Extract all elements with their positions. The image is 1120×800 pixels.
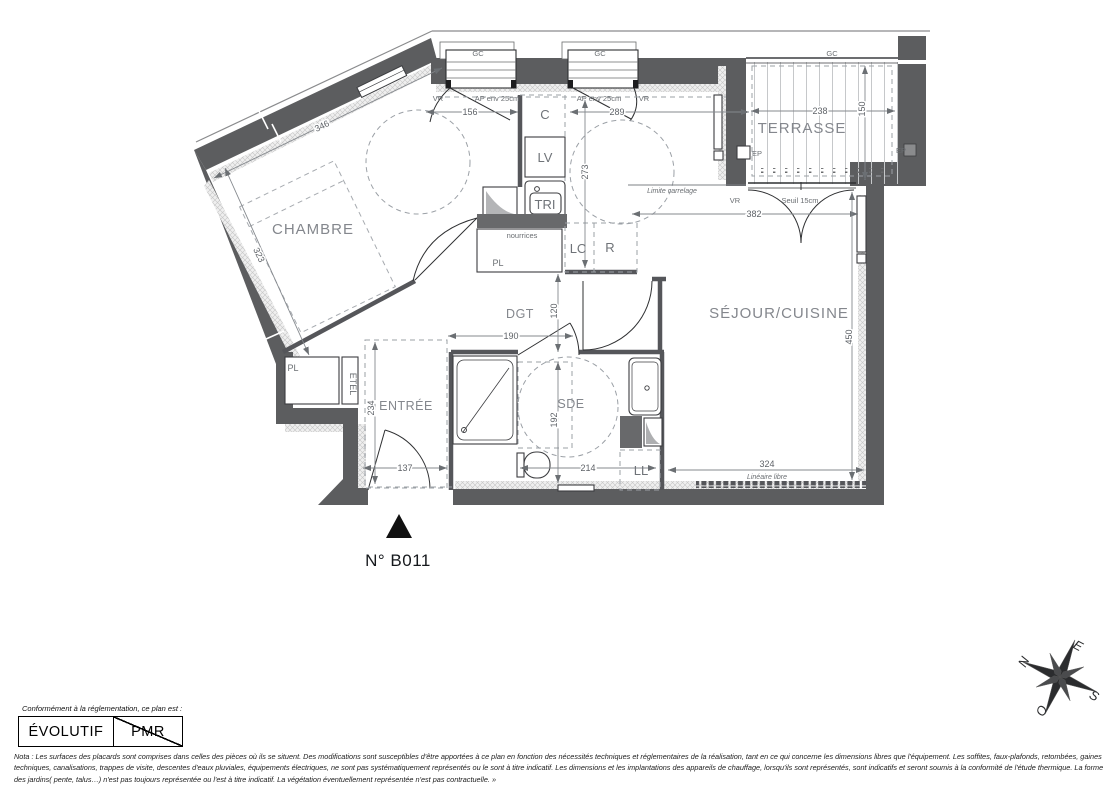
legend-table: ÉVOLUTIF PMR (18, 716, 183, 747)
pl-label-chambre: PL (287, 363, 298, 373)
turning-circle-chambre (366, 110, 470, 214)
legend-option-pmr: PMR (114, 717, 182, 746)
dim-chambre-left: 323 (251, 246, 267, 264)
gc-label-2: GC (594, 49, 606, 58)
c-label: C (540, 107, 549, 122)
entrance-door-swing (385, 430, 430, 488)
room-label-chambre: CHAMBRE (272, 221, 354, 238)
shower (453, 356, 517, 444)
lineaire-libre-label: Linéaire libre (747, 474, 787, 481)
dim-window1: 156 (462, 107, 477, 117)
limite-carrelage-label: Limite carrelage (647, 188, 697, 195)
sde-shaft (620, 416, 642, 448)
vr-label-1: VR (433, 94, 444, 103)
dim-entree-width: 137 (397, 463, 412, 473)
ep-label-left: EP (752, 149, 762, 158)
floor-plan-drawing: 346 323 156 289 273 238 150 382 450 190 … (0, 0, 1120, 800)
etel-label: ETEL (348, 373, 358, 396)
dim-terrasse-depth: 150 (857, 101, 867, 116)
sde-threshold (558, 485, 594, 491)
manifold-shaft (477, 214, 567, 228)
chambre-door-leaf (415, 218, 477, 280)
toilet-bowl (524, 452, 550, 478)
dim-lineaire-libre: 324 (759, 459, 774, 469)
vr-label-3: VR (730, 196, 741, 205)
sde-door-leaf (518, 323, 570, 355)
r-label: R (605, 240, 614, 255)
dim-entree-height: 234 (366, 400, 376, 415)
nourrices-label: nourrices (507, 231, 538, 240)
dim-sde-width: 214 (580, 463, 595, 473)
lineaire-libre-markers (696, 481, 866, 488)
room-label-dgt: DGT (506, 307, 534, 321)
dim-sejour-height: 450 (844, 329, 854, 344)
entrance-marker: N° B011 (365, 514, 431, 570)
dim-cuisine-depth: 273 (580, 164, 590, 179)
toilet-tank (517, 453, 524, 477)
ap-label-1: AP env 25cm (475, 94, 519, 103)
room-label-terrasse: TERRASSE (758, 120, 847, 137)
gc-label-1: GC (472, 49, 484, 58)
dim-dgt-width: 190 (503, 331, 518, 341)
compass-north-label: N (1015, 654, 1033, 670)
lv-label: LV (538, 150, 553, 165)
sejour-radiator-right (857, 196, 866, 252)
vr-label-2: VR (639, 94, 650, 103)
lc-label: LC (570, 241, 587, 256)
ap-label-2: AP env 25cm (577, 94, 621, 103)
room-label-sde: SDE (557, 397, 584, 411)
unit-number: N° B011 (365, 551, 431, 570)
room-label-sejour: SÉJOUR/CUISINE (709, 305, 849, 322)
dim-sejour-width: 382 (746, 209, 761, 219)
legend-intro: Conformément à la réglementation, ce pla… (22, 704, 182, 713)
entrance-door-leaf (368, 430, 385, 490)
dim-terrasse-width: 238 (812, 106, 827, 116)
ep-box-left (737, 146, 750, 159)
tri-label: TRI (535, 197, 556, 212)
nota-disclaimer: Nota : Les surfaces des placards sont co… (14, 751, 1106, 785)
sejour-radiator-left (714, 95, 722, 149)
pl-label-cuisine: PL (492, 258, 503, 268)
floor-plan-page: 346 323 156 289 273 238 150 382 450 190 … (0, 0, 1120, 800)
sde-door-swing (570, 323, 579, 355)
seuil-label: Seuil 15cm (781, 196, 818, 205)
sejour-door-swing (583, 281, 652, 350)
room-label-entree: ENTRÉE (379, 398, 433, 413)
dim-dgt-depth: 120 (549, 303, 559, 318)
ep-label-right: EP (896, 146, 906, 155)
dim-cuisine-width: 289 (609, 107, 624, 117)
window-1-leaf (450, 88, 510, 120)
compass-rose: N E S O (1008, 625, 1112, 729)
compass-east-label: E (1071, 637, 1086, 654)
entrance-triangle-icon (386, 514, 412, 538)
dim-sde-height: 192 (549, 412, 559, 427)
ll-label: LL (634, 463, 648, 478)
window-2-swing (630, 88, 637, 121)
legend-option-evolutif: ÉVOLUTIF (19, 717, 114, 746)
gc-label-3: GC (826, 49, 838, 58)
